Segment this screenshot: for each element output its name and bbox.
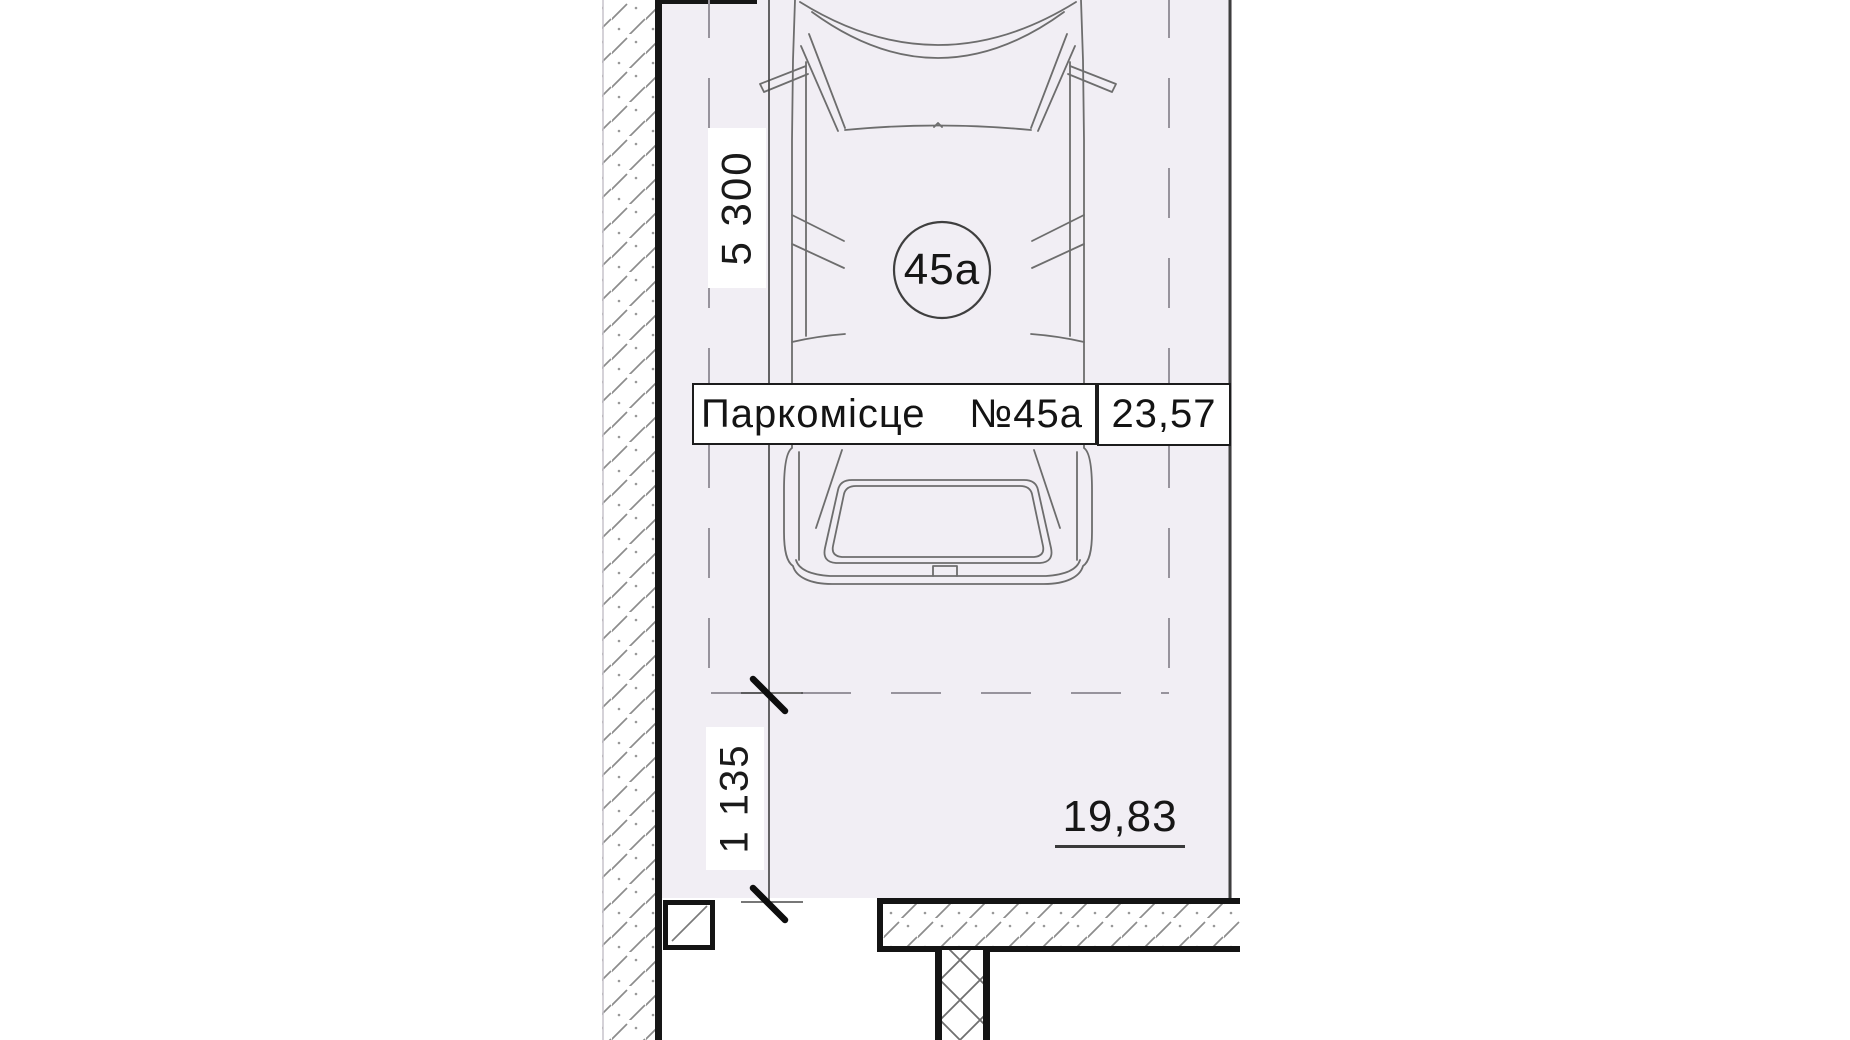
dimension-length-label: 5 300 (708, 128, 766, 288)
space-number-badge: 45а (894, 246, 990, 294)
wall-bottom-long (877, 898, 1240, 952)
dimension-offset-value: 1 135 (713, 743, 758, 853)
parking-plan-page: 5 300 1 135 45а Паркомісце №45а 23,57 19… (0, 0, 1850, 1040)
area-note-label: 19,83 (1055, 792, 1185, 848)
parking-plan-drawing (0, 0, 1850, 1040)
space-number-value: 45а (904, 245, 980, 295)
wall-pier-small (666, 903, 713, 948)
wall-left-hatched (602, 0, 662, 1040)
parking-area-value: 23,57 (1111, 392, 1216, 437)
area-note-value: 19,83 (1062, 792, 1177, 841)
parking-area-box: 23,57 (1097, 383, 1231, 446)
wall-top-cut (655, 0, 757, 4)
parking-label-number: №45а (969, 392, 1083, 437)
dimension-length-value: 5 300 (713, 150, 761, 265)
parking-label-name: Паркомісце (701, 392, 926, 437)
parking-label-box: Паркомісце №45а (692, 383, 1097, 445)
dimension-offset-label: 1 135 (706, 727, 764, 870)
column-lattice (935, 950, 990, 1040)
